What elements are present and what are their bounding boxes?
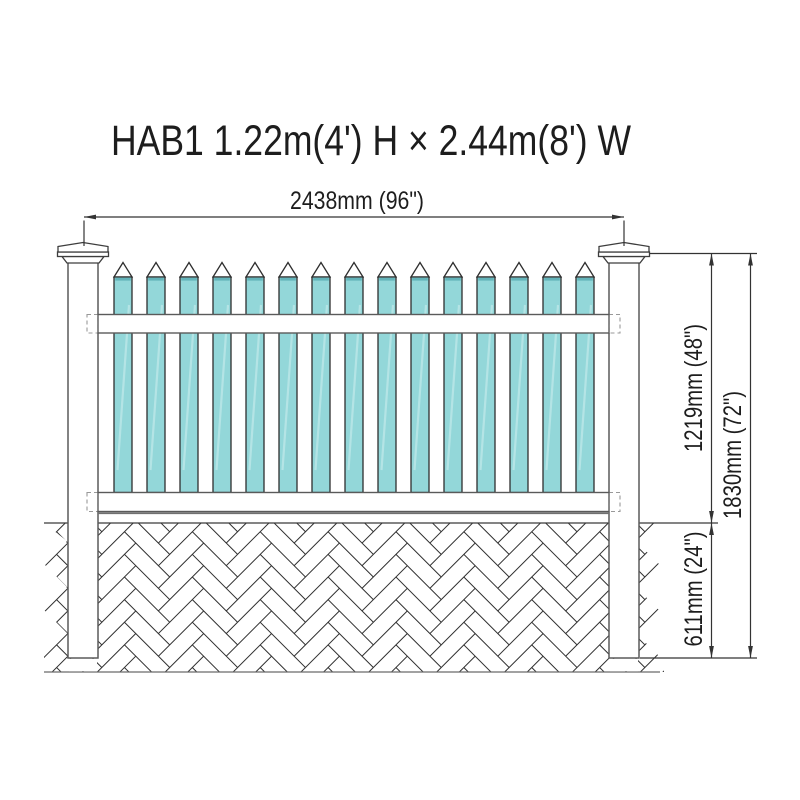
inner-arrow-top-up [709,254,714,266]
picket-tip [576,263,594,278]
picket-top-strip [445,278,461,281]
herringbone-ground-pattern [44,523,664,672]
picket-tip [345,263,363,278]
picket-top-strip [478,278,494,281]
depth-below-ground-label: 611mm (24") [680,532,708,647]
picket-tip [378,263,396,278]
picket-top-strip [247,278,263,281]
outer-arrow-top-up [748,254,753,266]
bottom-rail-hidden-stub-left [87,493,98,512]
picket-tip [213,263,231,278]
height-above-ground-label: 1219mm (48") [680,324,708,452]
picket-top-strip [511,278,527,281]
picket-tip [543,263,561,278]
picket-tip [246,263,264,278]
left-post-cap [58,243,109,264]
inner-arrow-grade-down [709,511,714,523]
picket-top-strip [148,278,164,281]
picket-top-strip [214,278,230,281]
picket-top-strip [181,278,197,281]
pickets [114,263,594,493]
picket-top-strip [280,278,296,281]
width-arrow-left [84,215,96,220]
picket-tip [312,263,330,278]
picket-tip [114,263,132,278]
picket-top-strip [544,278,560,281]
picket-tip [477,263,495,278]
right-cap-taper [603,257,645,264]
fence-dimension-diagram: 2438mm (96") 1219mm (48") 611mm (24") 18… [0,0,800,800]
top-rail-hidden-stub-left [87,315,98,334]
picket-tip [411,263,429,278]
picket-top-strip [313,278,329,281]
bottom-rail-hidden-stub-right [609,493,620,512]
picket-tip [279,263,297,278]
outer-arrow-bottom-down [748,646,753,658]
picket-top-strip [115,278,131,281]
left-cap-band [58,252,109,257]
top-rail-hidden-stub-right [609,315,620,334]
width-arrow-right [612,215,624,220]
picket-tip [444,263,462,278]
picket-top-strip [346,278,362,281]
top-rail [98,315,609,334]
picket-top-strip [379,278,395,281]
width-dimension-label: 2438mm (96") [290,187,424,215]
inner-arrow-grade-up [709,523,714,535]
left-cap-taper [62,257,104,264]
total-height-label: 1830mm (72") [719,391,747,519]
left-post-ground-mask [69,659,97,671]
inner-arrow-bottom-down [709,646,714,658]
picket-tip [180,263,198,278]
diagram-title: HAB1 1.22m(4') H × 2.44m(8') W [111,117,631,165]
bottom-rail [98,493,609,512]
left-cap-plate [58,243,108,253]
right-cap-band [599,252,650,257]
picket-top-strip [412,278,428,281]
right-post-ground-mask [610,659,638,671]
picket-tip [147,263,165,278]
picket-tip [510,263,528,278]
picket-top-strip [577,278,593,281]
